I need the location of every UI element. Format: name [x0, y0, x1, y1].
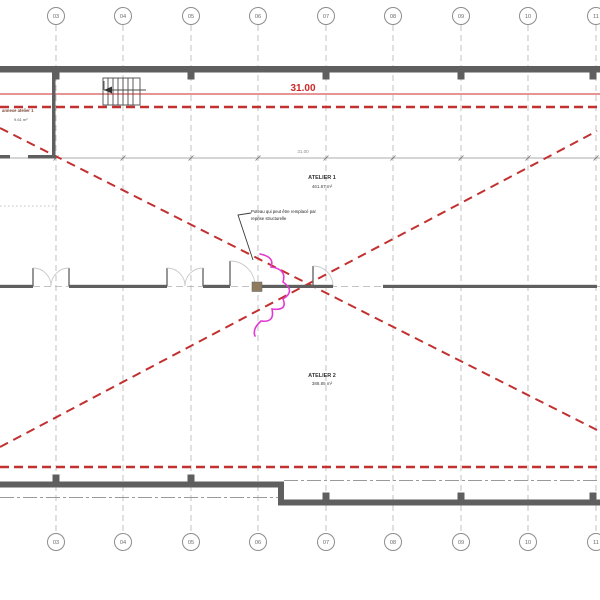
grid-bubble-top-05: 05 [183, 8, 200, 25]
grid-bubble-top-04: 04 [115, 8, 132, 25]
vertical-grid-lines [56, 25, 596, 533]
overall-dimension-grey: 31.00 [297, 149, 309, 154]
annexe-room-walls [0, 73, 56, 159]
floor-plan-viewport: 31.00 31.00 [0, 0, 600, 600]
grid-label: 04 [120, 14, 126, 20]
central-column [252, 282, 262, 292]
grid-bubble-bottom-08: 08 [385, 534, 402, 551]
overall-dimension-red: 31.00 [290, 83, 315, 94]
column-annotation: Poteau qui peut être remplacé par repris… [251, 209, 317, 221]
grid-bubble-bottom-10: 10 [520, 534, 537, 551]
red-marking-lines: 31.00 [0, 83, 600, 467]
grid-label: 06 [255, 14, 261, 20]
grid-label: 11 [593, 540, 599, 546]
grid-label: 09 [458, 540, 464, 546]
annexe-area: 9.61 m² [14, 117, 28, 122]
interior-wall-middle [0, 285, 597, 288]
grid-label: 03 [53, 14, 59, 20]
grid-label: 10 [525, 540, 531, 546]
dimension-line: 31.00 [0, 149, 600, 161]
grid-bubble-top-07: 07 [318, 8, 335, 25]
stair-icon [103, 78, 146, 105]
exterior-wall-top [0, 66, 600, 80]
room-label-atelier2: ATELIER 2 388.85 m² [308, 373, 336, 386]
grid-bubble-bottom-05: 05 [183, 534, 200, 551]
grid-bubble-top-03: 03 [48, 8, 65, 25]
grid-bubble-bottom-03: 03 [48, 534, 65, 551]
grid-bubble-top-10: 10 [520, 8, 537, 25]
exterior-wall-bottom [0, 475, 600, 506]
grid-label: 07 [323, 14, 329, 20]
red-diagonal-up [0, 131, 597, 447]
grid-label: 04 [120, 540, 126, 546]
annotation-line1: Poteau qui peut être remplacé par [251, 209, 317, 214]
red-diagonal-down [0, 128, 597, 430]
grid-bubble-bottom-09: 09 [453, 534, 470, 551]
grid-label: 03 [53, 540, 59, 546]
atelier1-area: 461.87 m² [312, 184, 333, 189]
grid-bubble-bottom-04: 04 [115, 534, 132, 551]
annexe-name: annexe atelier 1 [2, 108, 34, 113]
grid-label: 05 [188, 14, 194, 20]
grid-label: 06 [255, 540, 261, 546]
grid-label: 07 [323, 540, 329, 546]
grid-bubble-top-09: 09 [453, 8, 470, 25]
annotation-line2: reprise structurelle [251, 216, 287, 221]
floor-plan-drawing: 31.00 31.00 [0, 0, 600, 600]
grid-label: 08 [390, 540, 396, 546]
grid-label: 09 [458, 14, 464, 20]
grid-bubble-bottom-06: 06 [250, 534, 267, 551]
grid-bubbles-top: 03 04 05 06 07 08 09 10 11 [48, 8, 600, 25]
grid-bubble-top-08: 08 [385, 8, 402, 25]
grid-bubble-top-06: 06 [250, 8, 267, 25]
atelier2-name: ATELIER 2 [308, 373, 336, 379]
revision-cloud [254, 254, 289, 336]
grid-bubbles-bottom: 03 04 05 06 07 08 09 10 11 [48, 534, 600, 551]
grid-label: 11 [593, 14, 599, 20]
atelier2-area: 388.85 m² [312, 381, 333, 386]
grid-label: 10 [525, 14, 531, 20]
room-label-annexe: annexe atelier 1 9.61 m² [2, 108, 34, 122]
horizontal-axes [0, 206, 600, 498]
grid-bubble-top-11: 11 [588, 8, 600, 25]
grid-bubble-bottom-07: 07 [318, 534, 335, 551]
grid-bubble-bottom-11: 11 [588, 534, 600, 551]
grid-label: 05 [188, 540, 194, 546]
grid-label: 08 [390, 14, 396, 20]
room-label-atelier1: ATELIER 1 461.87 m² [308, 175, 336, 189]
atelier1-name: ATELIER 1 [308, 175, 336, 181]
